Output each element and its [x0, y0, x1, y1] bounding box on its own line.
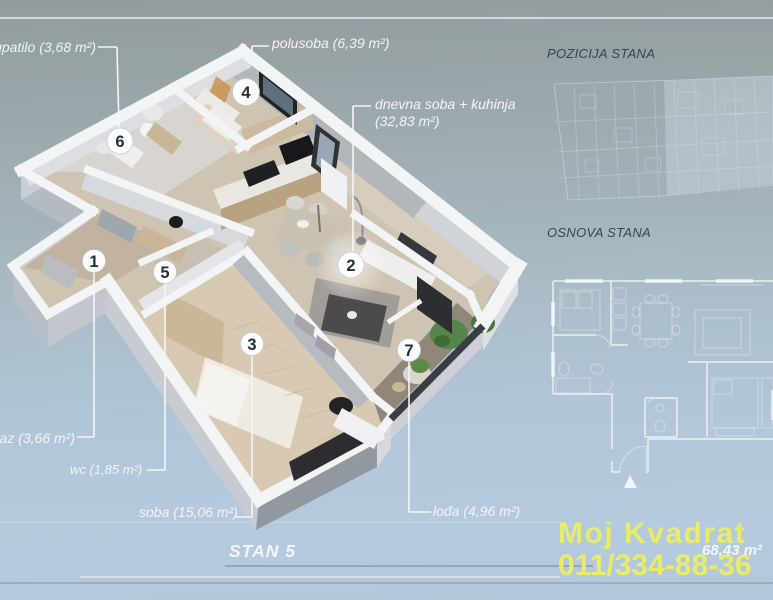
svg-text:6: 6	[115, 133, 124, 151]
svg-text:7: 7	[404, 342, 413, 360]
svg-text:3: 3	[247, 336, 256, 354]
svg-text:1: 1	[89, 253, 98, 271]
svg-text:4: 4	[241, 84, 251, 102]
svg-text:5: 5	[160, 264, 169, 282]
svg-text:2: 2	[346, 257, 355, 275]
